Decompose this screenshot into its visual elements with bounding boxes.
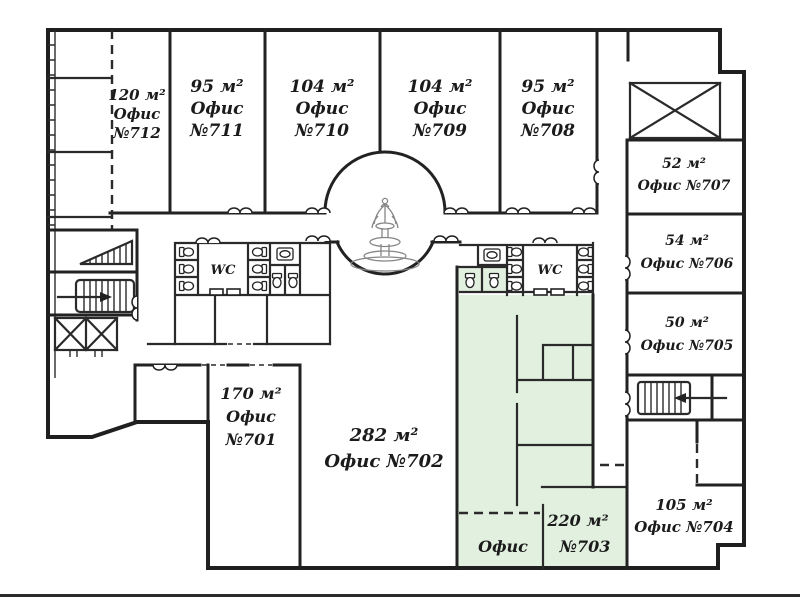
area-text: 104 м² <box>407 77 472 97</box>
area-text: 54 м² <box>665 233 709 249</box>
office-text: Офис <box>522 99 576 119</box>
number-text: №709 <box>412 121 467 141</box>
area-text: 220 м² <box>546 511 608 530</box>
toilet-icon <box>180 265 194 274</box>
area-text: 95 м² <box>190 77 243 97</box>
wc-door-leaf <box>210 289 223 295</box>
area-text: 105 м² <box>655 496 713 514</box>
number-text: №711 <box>189 121 244 141</box>
office-text: Офис №706 <box>641 256 734 272</box>
office-709-label: 104 м² Офис №709 <box>407 77 472 141</box>
office-706-label: 54 м² Офис №706 <box>641 233 734 272</box>
toilet-icon <box>579 248 593 257</box>
elevator-shaft-icon-right <box>630 83 720 138</box>
office-text: Офис №705 <box>641 338 734 354</box>
office-text: Офис №707 <box>638 178 731 194</box>
office-705-label: 50 м² Офис №705 <box>641 315 734 354</box>
bottom-border-line <box>0 594 800 597</box>
office-text: Офис <box>191 99 245 119</box>
area-text: 95 м² <box>521 77 574 97</box>
area-text: 282 м² <box>349 425 419 446</box>
toilet-icon <box>273 274 282 288</box>
stairs-icon-left <box>58 280 134 312</box>
number-text: №708 <box>520 121 575 141</box>
toilet-icon <box>579 265 593 274</box>
office-702-label: 282 м² Офис №702 <box>324 425 443 472</box>
office-text: Офис <box>114 105 161 123</box>
office-708-label: 95 м² Офис №708 <box>520 77 575 141</box>
toilet-icon <box>253 248 267 257</box>
office-text: Офис <box>226 407 276 426</box>
area-text: 50 м² <box>665 315 709 331</box>
toilet-icon <box>466 274 475 288</box>
office-text: Офис <box>414 99 468 119</box>
office-text: Офис №704 <box>634 518 733 536</box>
toilet-icon <box>180 248 194 257</box>
wc-right-label: WC <box>538 263 564 278</box>
sink-icon <box>277 248 293 260</box>
office-text: Офис <box>296 99 350 119</box>
sink-icon <box>484 249 500 261</box>
office-711-label: 95 м² Офис №711 <box>189 77 244 141</box>
area-text: 52 м² <box>662 156 706 172</box>
toilet-icon <box>508 282 522 291</box>
office-704-label: 105 м² Офис №704 <box>634 496 733 536</box>
office-712-label: 120 м² Офис №712 <box>108 86 166 142</box>
toilet-icon <box>490 274 499 288</box>
office-text: Офис <box>478 537 528 556</box>
area-text: 120 м² <box>108 86 166 104</box>
toilet-icon <box>253 265 267 274</box>
elevator-shaft-icon-left <box>55 318 117 357</box>
office-707-label: 52 м² Офис №707 <box>638 156 731 194</box>
floor-plan: 120 м² Офис №712 95 м² Офис №711 104 м² … <box>0 0 800 601</box>
number-text: №712 <box>112 124 161 142</box>
floor-plan-page: 120 м² Офис №712 95 м² Офис №711 104 м² … <box>0 0 800 601</box>
wc-door-leaf <box>551 289 564 295</box>
toilet-icon <box>508 265 522 274</box>
number-text: №703 <box>559 537 611 556</box>
number-text: №710 <box>294 121 349 141</box>
wc-left-label: WC <box>211 263 237 278</box>
toilet-icon <box>508 248 522 257</box>
number-text: №701 <box>225 430 277 449</box>
toilet-icon <box>180 282 194 291</box>
wc-door-leaf <box>227 289 240 295</box>
toilet-icon <box>579 282 593 291</box>
wc-door-leaf <box>534 289 547 295</box>
office-text: Офис №702 <box>324 451 443 472</box>
area-text: 104 м² <box>289 77 354 97</box>
ramp-icon <box>80 241 132 264</box>
area-text: 170 м² <box>220 384 281 403</box>
toilet-icon <box>253 282 267 291</box>
toilet-icon <box>289 274 298 288</box>
office-710-label: 104 м² Офис №710 <box>289 77 354 141</box>
fountain-icon <box>351 198 419 271</box>
office-701-label: 170 м² Офис №701 <box>220 384 281 449</box>
